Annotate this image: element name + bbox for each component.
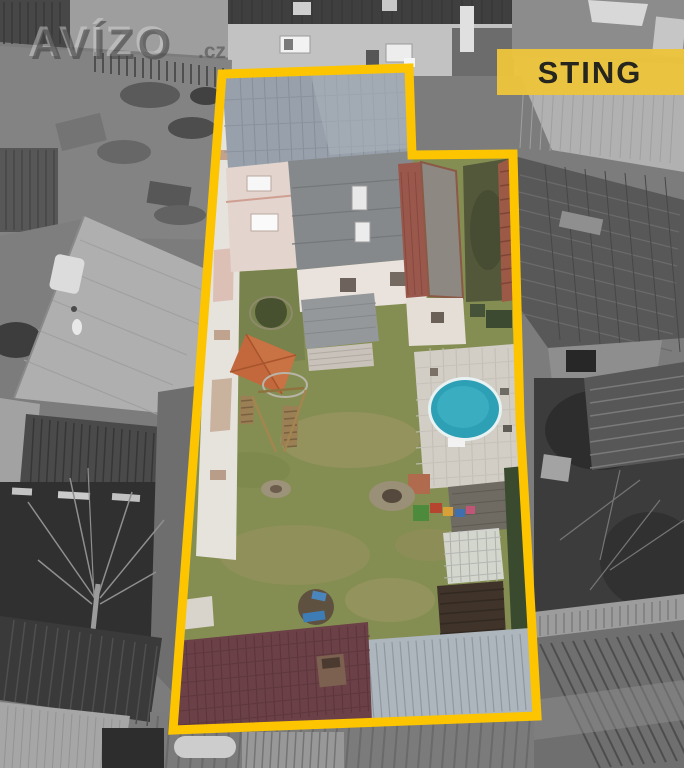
small-shed-right	[540, 454, 571, 482]
deck-chair-b	[503, 425, 512, 432]
pool-water-light	[437, 386, 489, 428]
roof-chimney-top	[322, 657, 341, 669]
grass-patch-c	[345, 578, 435, 622]
sting-badge-text: STING	[538, 55, 643, 90]
toy-red	[430, 503, 442, 513]
junk-pile-c	[97, 140, 151, 164]
stone-patch-core	[270, 485, 282, 493]
roof-vent-dot	[71, 306, 77, 312]
compost-crate-b	[470, 304, 485, 317]
dark-block-chimney	[102, 728, 164, 768]
dark-shed-left	[0, 148, 58, 232]
fence-light-a	[12, 487, 32, 495]
gable-window-a	[352, 186, 367, 210]
topright-white-truck	[588, 0, 648, 26]
junk-pile-e	[154, 205, 206, 225]
agency-badge: STING	[497, 49, 684, 95]
aerial-photo: AVÍZO AVÍZO .cz STING	[0, 0, 684, 768]
wall-brick-b	[214, 330, 230, 340]
toy-green-box	[413, 505, 429, 521]
deck-planter	[430, 368, 438, 376]
toy-blue	[455, 509, 465, 517]
toy-pink	[466, 506, 475, 514]
grass-patch-b	[220, 525, 370, 585]
annex-window	[431, 312, 444, 323]
property-interior	[172, 68, 537, 732]
compost-crate-a	[486, 310, 512, 328]
neighbor-window	[566, 350, 596, 372]
chimney-a	[293, 2, 311, 15]
grass-patch-a	[280, 412, 420, 468]
facade-window-a-pane	[284, 39, 293, 50]
west-wall-window-a	[247, 176, 271, 191]
courtyard-bush	[255, 296, 287, 328]
watermark-suffix-text: .cz	[198, 40, 226, 63]
junk-pile-b	[168, 117, 216, 139]
deck-chair-a	[500, 388, 509, 395]
wall-brick-c	[210, 470, 226, 480]
south-wall-window-b	[390, 272, 406, 286]
chimney-b	[382, 0, 397, 11]
pool-ladder	[448, 438, 465, 447]
mid-ribbed-roof	[242, 732, 344, 768]
watermark-text: AVÍZO	[31, 21, 174, 69]
listing-photo-stage: AVÍZO AVÍZO .cz STING	[0, 0, 684, 768]
gable-window-b	[355, 222, 370, 242]
gray-cylinder	[174, 736, 236, 758]
junk-pile-a	[120, 82, 180, 108]
wall-trim-b	[210, 378, 232, 432]
roof-vent-cone	[72, 319, 82, 335]
facade-roof	[228, 0, 532, 26]
facade-chimney-white	[460, 6, 474, 52]
toy-yellow	[443, 507, 453, 516]
south-wall-window-a	[340, 278, 356, 292]
fire-pit-core	[382, 489, 402, 503]
west-wall-window-b	[251, 214, 278, 231]
